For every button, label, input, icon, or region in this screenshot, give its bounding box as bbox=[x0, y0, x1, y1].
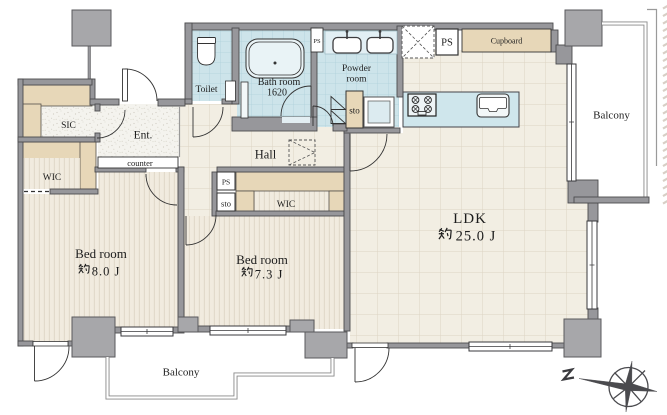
svg-text:7.3 J: 7.3 J bbox=[255, 268, 284, 282]
svg-text:PS: PS bbox=[441, 38, 453, 49]
svg-text:counter: counter bbox=[127, 158, 153, 168]
svg-text:PS: PS bbox=[222, 178, 230, 187]
svg-text:Toilet: Toilet bbox=[195, 85, 217, 95]
svg-text:WIC: WIC bbox=[277, 200, 295, 210]
svg-text:1620: 1620 bbox=[267, 88, 287, 99]
svg-text:Bed room: Bed room bbox=[236, 252, 288, 267]
svg-text:Bath room: Bath room bbox=[258, 77, 301, 88]
svg-text:Cupboard: Cupboard bbox=[491, 37, 523, 46]
svg-text:Bed room: Bed room bbox=[75, 246, 127, 261]
svg-text:Balcony: Balcony bbox=[593, 110, 630, 122]
svg-text:Hall: Hall bbox=[255, 148, 277, 162]
svg-text:Ent.: Ent. bbox=[134, 130, 153, 142]
svg-text:room: room bbox=[346, 75, 367, 85]
svg-text:Powder: Powder bbox=[342, 64, 372, 74]
svg-text:25.0 J: 25.0 J bbox=[456, 229, 497, 245]
svg-text:LDK: LDK bbox=[453, 211, 487, 227]
svg-text:sto: sto bbox=[349, 106, 360, 116]
svg-text:8.0 J: 8.0 J bbox=[92, 265, 121, 279]
svg-text:WIC: WIC bbox=[43, 173, 61, 183]
svg-text:sto: sto bbox=[221, 199, 231, 209]
svg-text:SIC: SIC bbox=[61, 121, 76, 131]
svg-text:PS: PS bbox=[313, 38, 321, 45]
svg-text:Balcony: Balcony bbox=[163, 367, 200, 379]
